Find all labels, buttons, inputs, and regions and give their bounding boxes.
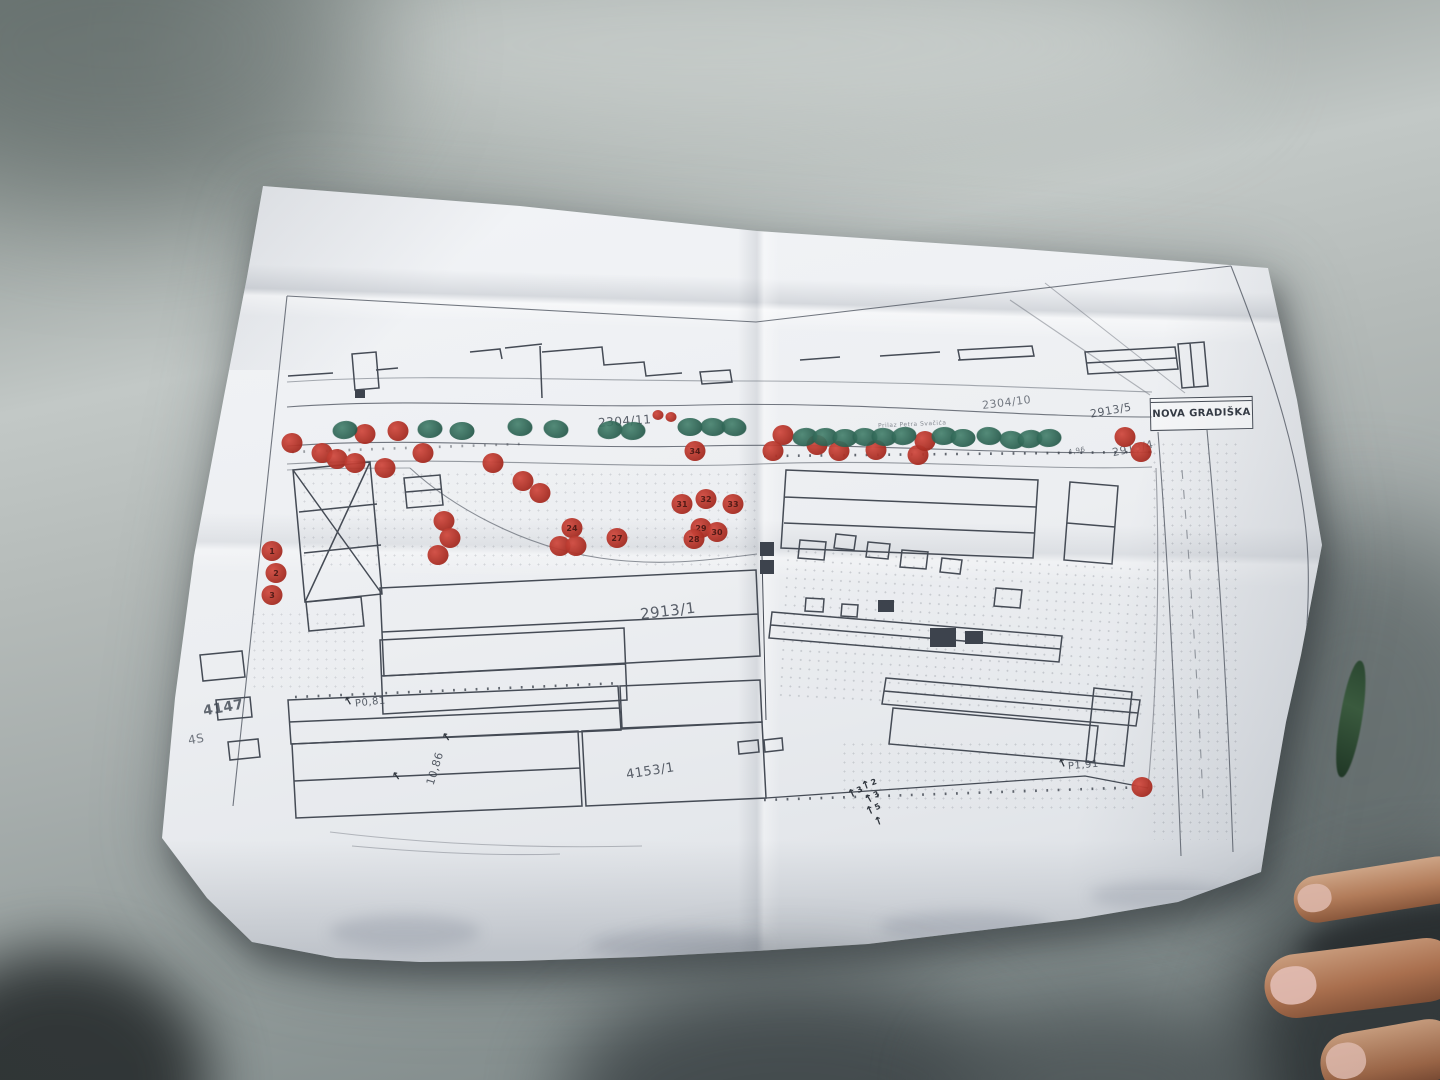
tree-marker-red bbox=[355, 424, 376, 444]
tree-marker-red bbox=[1132, 777, 1153, 797]
tree-marker-red: 30 bbox=[707, 522, 728, 542]
tree-marker-red bbox=[428, 545, 449, 565]
tree-marker-red: 33 bbox=[723, 494, 744, 514]
tree-marker-red: 28 bbox=[684, 529, 705, 549]
tree-marker-red bbox=[388, 421, 409, 441]
destination-label: NOVA GRADIŠKA bbox=[1152, 407, 1251, 420]
tree-marker-red: 1 bbox=[262, 541, 283, 561]
fingernail bbox=[1268, 964, 1318, 1007]
tree-marker-red: 2 bbox=[266, 563, 287, 583]
tree-marker-red bbox=[1131, 442, 1152, 462]
tree-marker-red bbox=[282, 433, 303, 453]
tree-marker-red bbox=[1115, 427, 1136, 447]
tree-marker-red bbox=[653, 410, 664, 420]
tree-marker-red bbox=[666, 412, 677, 422]
tree-marker-red bbox=[440, 528, 461, 548]
tree-marker-red bbox=[345, 453, 366, 473]
tree-marker-red bbox=[413, 443, 434, 463]
tree-marker-red bbox=[566, 536, 587, 556]
tree-marker-red bbox=[530, 483, 551, 503]
tree-marker-red bbox=[375, 458, 396, 478]
tree-marker-green bbox=[450, 422, 475, 440]
tree-marker-green bbox=[678, 418, 703, 436]
destination-box: NOVA GRADIŠKA bbox=[1150, 396, 1254, 431]
parcel-label-4s: 4S bbox=[187, 731, 205, 748]
tree-marker-red bbox=[483, 453, 504, 473]
tree-marker-red: 34 bbox=[685, 441, 706, 461]
tree-marker-red: 32 bbox=[696, 489, 717, 509]
paper-shadow-wrap: NOVA GRADIŠKA 2304/11 2304/10 2913/5 291… bbox=[0, 0, 1440, 1080]
tree-marker-red: 27 bbox=[607, 528, 628, 548]
tree-marker-red: 3 bbox=[262, 585, 283, 605]
fingernail bbox=[1323, 1040, 1369, 1080]
tree-marker-green bbox=[951, 429, 976, 447]
tree-marker-red bbox=[763, 441, 784, 461]
site-plan-paper: NOVA GRADIŠKA 2304/11 2304/10 2913/5 291… bbox=[0, 0, 1440, 1080]
fingernail bbox=[1296, 882, 1334, 915]
photo-scene: NOVA GRADIŠKA 2304/11 2304/10 2913/5 291… bbox=[0, 0, 1440, 1080]
tree-marker-red: 31 bbox=[672, 494, 693, 514]
tree-marker-red: 24 bbox=[562, 518, 583, 538]
